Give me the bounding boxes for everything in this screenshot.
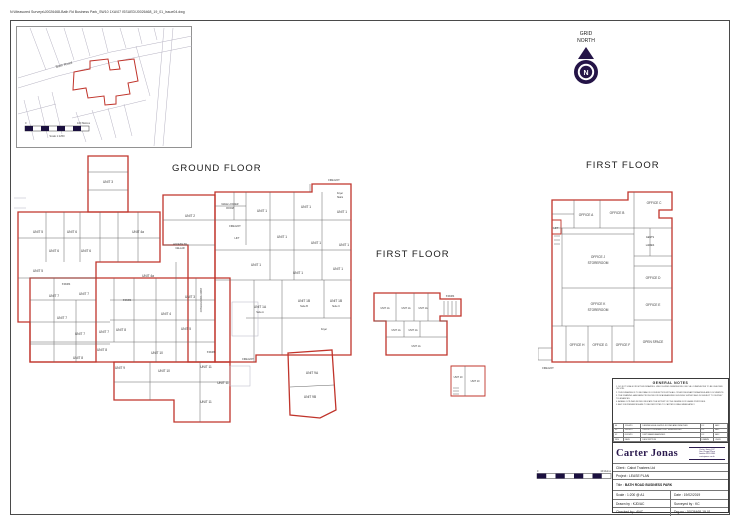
surveyed-value: KC [695,502,700,506]
unit-label: UNIT 1 [301,205,311,209]
stairs-label: STAIRS [123,299,132,302]
date-label: Date : [674,493,683,497]
unit-label: UNIT 1A [401,307,411,310]
ground-unit-labels: UNIT 3 UNIT 2 UNIT 4a UNIT 6 UNIT 5 UNIT… [33,179,349,404]
scale-label: Scale : [616,493,626,497]
drawn-value: KJD/AC [633,502,645,506]
open-space-label: OPEN SPACE [643,340,664,344]
unit-label: UNIT 9 [115,366,125,370]
title-label: Title : [616,483,624,487]
suite-label: Suite C [332,305,340,308]
logo-row: Carter Jonas Carter Jonas LLP One Chapel… [613,442,728,463]
fire-exit-label: FIRE EXIT [242,358,254,361]
unit-label: UNIT 11 [200,365,212,369]
suite-label: Suite A [256,311,264,314]
unit-label: UNIT 9B [304,395,316,399]
rev-header: CHKD [714,437,728,442]
right-room-labels: OFFICE A OFFICE B OFFICE C LIFT GENTS LA… [542,201,663,370]
unit-label: UNIT 11 [217,381,229,385]
storeroom-label: STOREROOM [588,261,609,265]
note-item: 5. ANY DISCREPANCIES ARE TO BE REPORTED … [616,404,725,406]
stairs-label: STAIRS [207,351,216,354]
checked-label: Checked by : [616,510,635,514]
office-label: OFFICE A [579,213,594,217]
unit-label: UNIT 1B [330,299,342,303]
date-value: 19/02/2019 [684,493,701,497]
drg-no-value: J0026468-19-01 [687,510,711,514]
unit-label: UNIT 7 [49,294,59,298]
scale-left-label: 0 [537,470,539,473]
project-row: Project : LEASE PLAN [613,471,728,479]
surveyed-label: Surveyed by : [674,502,694,506]
unit-label: UNIT 7 [57,316,67,320]
unit-label: UNIT 10 [151,351,163,355]
map-scale-right: 100 Metres [77,121,91,125]
first-floor-right-title: FIRST FLOOR [586,160,660,171]
unit-label: UNIT 2 [185,214,195,218]
note-item: 1. DO NOT SCALE FROM THIS DRAWING. USE F… [616,386,725,391]
unit-label: UNIT 1A [254,305,267,309]
lift-label: LIFT [235,237,240,240]
project-value: LEASE PLAN [629,474,649,478]
unit-label: UNIT 5 [33,269,43,273]
unit-label: UNIT 5 [33,230,43,234]
note-item: 2. THIS DRAWING IS TO BE READ IN CONJUNC… [616,392,725,394]
office-label: OFFICE B [610,211,625,215]
fire-exit-label: FIRE EXIT [328,179,340,182]
drawn-label: Drawn by : [616,502,632,506]
suite-label: Suite B [300,305,308,308]
general-notes-title: GENERAL NOTES [616,381,725,385]
north-label-grid: GRID [580,31,593,37]
unit-label: UNIT 4 [161,312,171,316]
access-cellar-label: CELLAR [175,247,185,250]
file-path: N:\Measured Surveys\J0026468-Bath Rd Bus… [10,10,185,14]
unit-label: UNIT 4a [132,230,144,234]
revision-table: 04 12/04/19 DEMISE HIGHLIGHTED ROOMS AND… [613,423,728,442]
unit-label: UNIT 10 [471,380,481,383]
unit-label: UNIT 8 [116,328,126,332]
main-scale-bar: 0 10 Metres [533,468,615,482]
first-floor-mid-title: FIRST FLOOR [376,249,450,260]
unit-label: UNIT 6 [67,230,77,234]
drawing-sheet: N:\Measured Surveys\J0026468-Bath Rd Bus… [0,0,736,520]
drg-no-label: Drg no : [674,510,686,514]
stairs-label: STAIRS [446,295,455,298]
office-label: OFFICE K [591,302,607,306]
locker-room-label: MALE LOCKER [221,203,238,206]
rev-header: DRAWN [700,437,714,442]
office-label: OFFICE H [570,343,586,347]
title-block: GENERAL NOTES 1. DO NOT SCALE FROM THIS … [612,378,729,513]
unit-label: UNIT 1A [408,329,418,332]
unit-label: UNIT 1 [339,243,349,247]
scale-right-label: 10 Metres [600,470,611,473]
unit10-demise-outline [451,366,485,396]
title-row: Title : BATH ROAD BUSINESS PARK [613,479,728,490]
unit-label: UNIT 1 [333,267,343,271]
unit-label: UNIT 8 [97,348,107,352]
unit-label: UNIT 7 [79,292,89,296]
office-label: OFFICE C [647,201,663,205]
unit-label: UNIT 1 [337,210,347,214]
office-label: OFFICE J [591,255,606,259]
office-label: OFFICE F [616,343,631,347]
office-label: OFFICE E [646,303,661,307]
fire-exit-label: FIRE EXIT [229,225,241,228]
unit-label: UNIT 9A [306,371,319,375]
client-value: Cabot Trustees Ltd [627,466,655,470]
unit10-plan: UNIT 10 UNIT 10 [447,362,489,404]
unit-label: UNIT 6 [81,249,91,253]
locker-room-label: ROOM [226,207,233,210]
map-scale-caption: Scale 1:1250 [49,134,65,138]
unit-label: UNIT 1 [293,271,303,275]
unit-label: UNIT 11 [200,400,212,404]
carter-jonas-logo: Carter Jonas [616,448,678,459]
first-floor-mid-plan: UNIT 1A UNIT 1A UNIT 1A STAIRS UNIT 1A U… [368,285,468,360]
storeroom-label: STOREROOM [588,308,609,312]
unit-label: UNIT 8 [73,356,83,360]
office-label: OFFICE D [646,276,662,280]
toilet-label: GENTS [646,236,655,239]
ground-surrounding-walls [14,198,258,386]
north-letter: N [583,70,588,77]
access-cellar-label: ACCESS TO [173,243,187,246]
unit10-interior-walls [453,366,465,396]
toilet-label: LADIES [646,244,655,247]
north-arrow-icon [578,47,594,59]
unit-label: UNIT 1B [298,299,310,303]
scale-value: 1:200 @ A1 [627,493,644,497]
project-label: Project : [616,474,628,478]
unit-label: UNIT 1 [311,241,321,245]
scale-date-row: Scale : 1:200 @ A1 Date : 19/02/2019 [613,490,728,499]
address-line: carterjonas.co.uk [689,456,725,458]
unit-label: UNIT 10 [158,369,170,373]
unit-label: UNIT 1A [380,307,390,310]
unit-label: UNIT 1A [391,329,401,332]
unit-label: UNIT 5 [181,327,191,331]
drawn-surveyed-row: Drawn by : KJD/AC Surveyed by : KC [613,499,728,508]
rev-header: REV [614,437,624,442]
unit-label: UNIT 7 [75,332,85,336]
client-label: Client : [616,466,626,470]
lift-label: LIFT [554,227,559,230]
checked-drg-row: Checked by : ANC Drg no : J0026468-19-01 [613,507,728,516]
north-indicator: GRID NORTH N [556,26,616,90]
client-row: Client : Cabot Trustees Ltd [613,463,728,471]
unit-label: UNIT 1 [257,209,267,213]
unit-label: UNIT 1 [277,235,287,239]
location-map: Bath Road 0 100 Metres Scale 1:1250 [16,26,192,148]
foyer-label: Foyer [337,192,343,195]
stairs-label: STAIRS [62,283,71,286]
unit-label: UNIT 1 [251,263,261,267]
unit-label: UNIT 3 [185,295,195,299]
revision-header-row: REV DATE DESCRIPTION DRAWN CHKD [614,437,728,442]
unit-label: UNIT 6 [49,249,59,253]
stairs-label: Stairs [337,196,344,199]
north-label-north: NORTH [577,38,595,44]
foyer-label: Foyer [321,328,327,331]
company-address: Carter Jonas LLP One Chapel Place London… [689,447,725,460]
note-item: 3. THE DRAWING HAS BEEN PRODUCED FROM A … [616,395,725,400]
fire-exit-label: FIRE EXIT [542,367,554,370]
unit-label: UNIT 7 [99,330,109,334]
unit-label: UNIT 10 [454,376,464,379]
unit-label: UNIT 1A [411,345,421,348]
rev-header: DATE [623,437,641,442]
unit-label: UNIT 1A [418,307,428,310]
unit-label: UNIT 4a [142,274,154,278]
general-notes: GENERAL NOTES 1. DO NOT SCALE FROM THIS … [613,379,728,423]
checked-value: ANC [636,510,643,514]
corridor-label: COVERED WALKWAY [200,287,203,312]
office-label: OFFICE G [592,343,608,347]
title-value: BATH ROAD BUSINESS PARK [625,483,672,487]
first-floor-right-plan: OFFICE A OFFICE B OFFICE C LIFT GENTS LA… [538,188,678,373]
unit-label: UNIT 3 [103,180,113,184]
rev-header: DESCRIPTION [641,437,700,442]
ground-floor-plan: UNIT 3 UNIT 2 UNIT 4a UNIT 6 UNIT 5 UNIT… [14,150,364,430]
